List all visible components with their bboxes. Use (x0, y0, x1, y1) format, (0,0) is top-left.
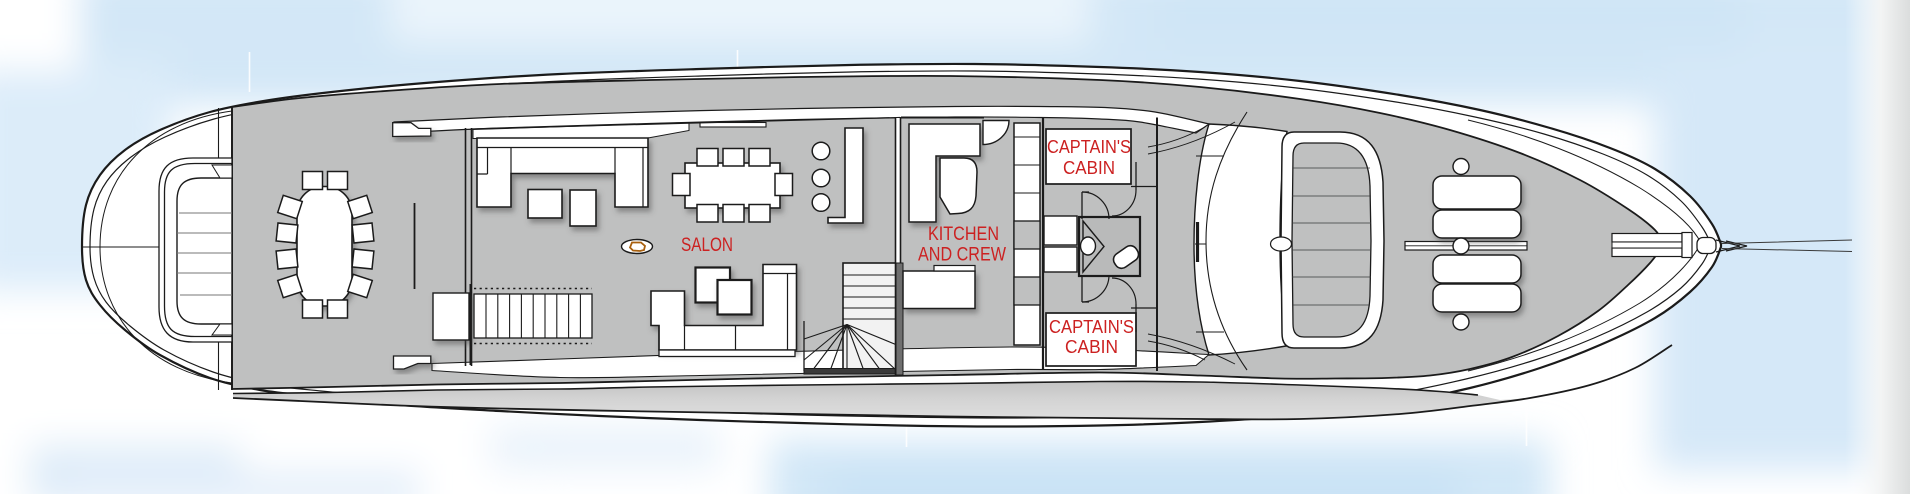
svg-text:CABIN: CABIN (1065, 337, 1118, 357)
svg-text:CAPTAIN'S: CAPTAIN'S (1047, 137, 1131, 157)
svg-text:AND CREW: AND CREW (918, 244, 1006, 266)
svg-text:KITCHEN: KITCHEN (928, 223, 999, 245)
svg-text:SALON: SALON (681, 234, 733, 256)
svg-text:CABIN: CABIN (1063, 158, 1115, 178)
svg-text:CAPTAIN'S: CAPTAIN'S (1049, 317, 1134, 337)
